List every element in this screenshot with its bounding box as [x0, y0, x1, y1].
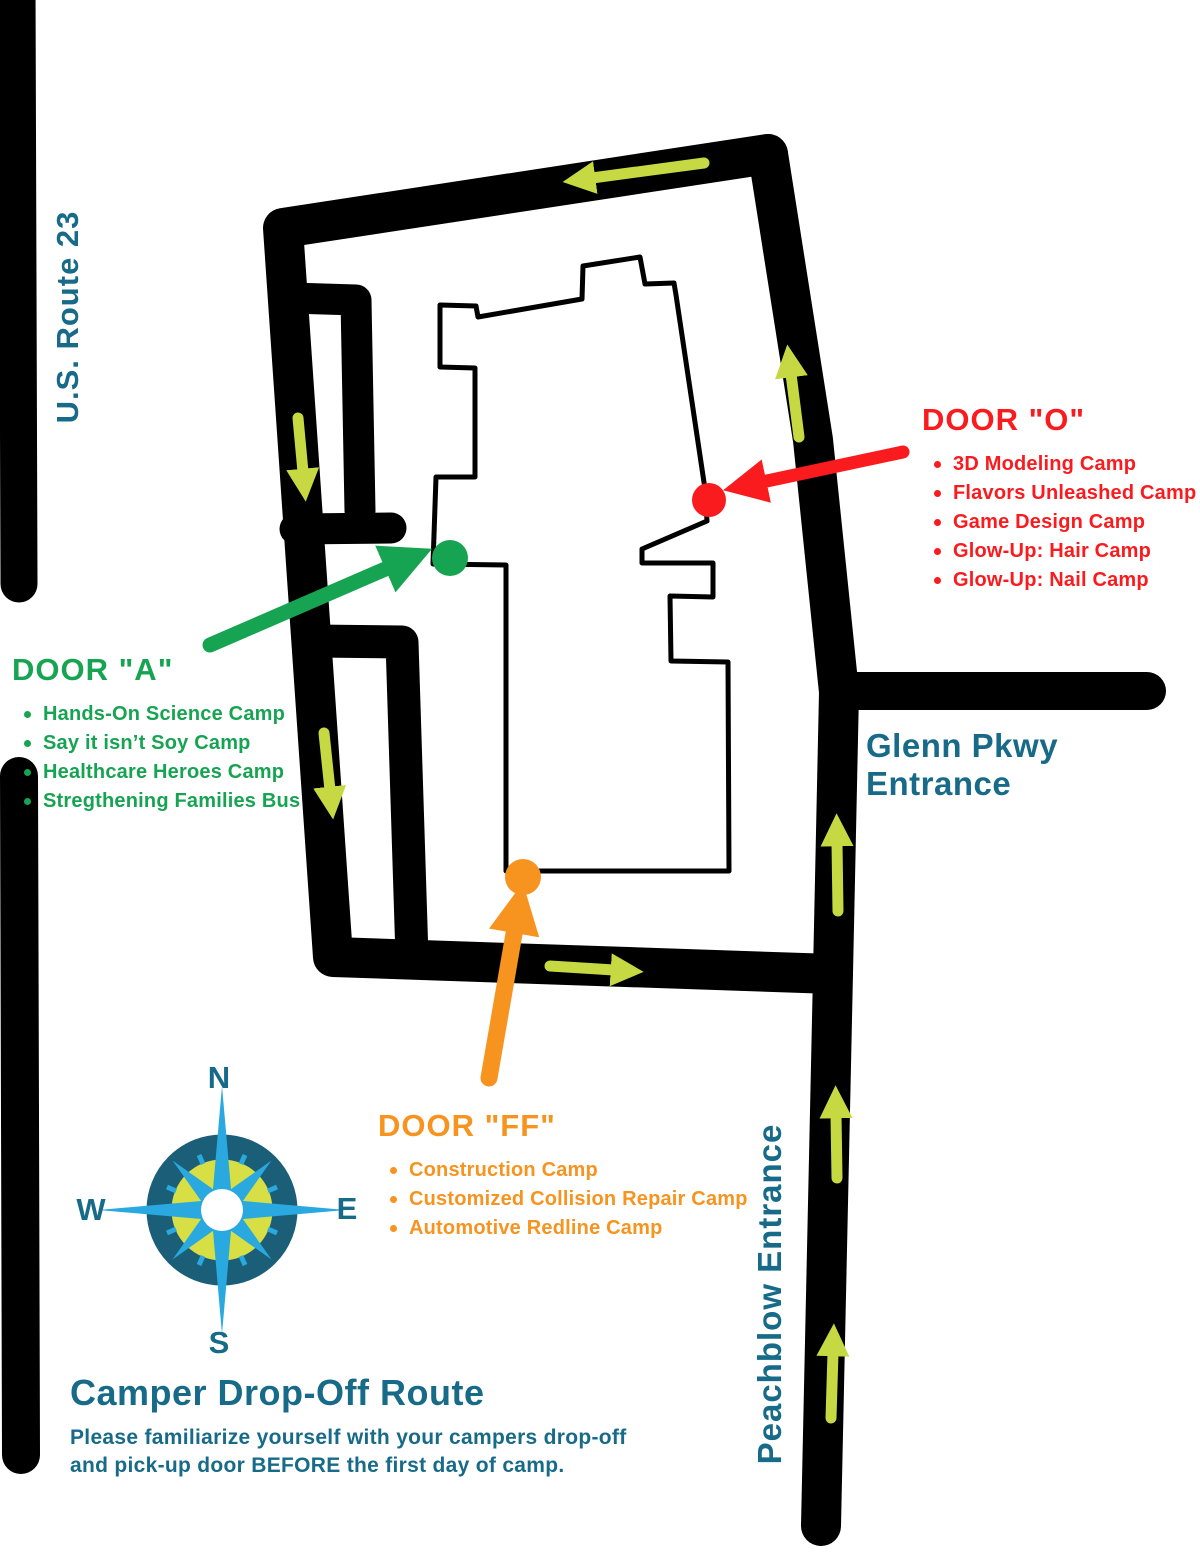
compass-center	[201, 1189, 243, 1231]
camper-dropoff-route-map: U.S. Route 23 Glenn Pkwy Entrance Peachb…	[0, 0, 1200, 1553]
camp-label: Automotive Redline Camp	[409, 1217, 663, 1240]
camp-label: Construction Camp	[409, 1159, 598, 1182]
compass-east-label: E	[325, 1189, 369, 1229]
door-o-dot	[692, 483, 726, 517]
door-ff-title: DOOR "FF"	[378, 1108, 748, 1142]
camp-label: Hands-On Science Camp	[43, 703, 285, 726]
camp-label: Healthcare Heroes Camp	[43, 761, 284, 784]
compass-north-label: N	[197, 1058, 241, 1098]
bullet-icon	[390, 1225, 397, 1232]
camp-label: Say it isn’t Soy Camp	[43, 732, 251, 755]
peachblow-entrance-label: Peachblow Entrance	[751, 1114, 787, 1474]
us-route-23-road-lower	[19, 776, 21, 1455]
bullet-icon	[934, 461, 941, 468]
list-item: Glow-Up: Nail Camp	[920, 566, 1196, 595]
camp-label: Customized Collision Repair Camp	[409, 1188, 748, 1211]
list-item: Hands-On Science Camp	[10, 700, 300, 729]
door-o-camp-list: 3D Modeling Camp Flavors Unleashed Camp …	[920, 450, 1196, 595]
door-ff-block: DOOR "FF" Construction Camp Customized C…	[376, 1108, 748, 1243]
footer-instruction-line1: Please familiarize yourself with your ca…	[70, 1426, 627, 1450]
list-item: Flavors Unleashed Camp	[920, 479, 1196, 508]
camp-label: Glow-Up: Hair Camp	[953, 540, 1151, 563]
door-a-camp-list: Hands-On Science Camp Say it isn’t Soy C…	[10, 700, 300, 816]
route-arrow-left-down-2	[324, 733, 330, 790]
list-item: Game Design Camp	[920, 508, 1196, 537]
camp-label: Glow-Up: Nail Camp	[953, 569, 1149, 592]
route-arrow-left-down-1	[298, 418, 303, 472]
bullet-icon	[934, 490, 941, 497]
glenn-pkwy-line1: Glenn Pkwy	[866, 727, 1058, 765]
list-item: Stregthening Families Bus	[10, 787, 300, 816]
door-ff-camp-list: Construction Camp Customized Collision R…	[376, 1156, 748, 1243]
compass-south-label: S	[197, 1323, 241, 1363]
door-o-block: DOOR "O" 3D Modeling Camp Flavors Unleas…	[920, 402, 1196, 595]
route-arrow-bottom-east	[550, 966, 614, 970]
door-a-dot	[432, 540, 468, 576]
door-o-title: DOOR "O"	[922, 402, 1196, 436]
page-title: Camper Drop-Off Route	[70, 1372, 485, 1414]
bullet-icon	[24, 769, 31, 776]
list-item: Healthcare Heroes Camp	[10, 758, 300, 787]
us-route-23-road-upper	[17, 0, 19, 584]
glenn-pkwy-entrance-label: Glenn Pkwy Entrance	[866, 727, 1058, 803]
list-item: Say it isn’t Soy Camp	[10, 729, 300, 758]
upper-parking-stub-road-bottom	[295, 528, 391, 529]
route-arrow-peachblow-up-2	[831, 1353, 833, 1418]
camp-label: 3D Modeling Camp	[953, 453, 1136, 476]
list-item: 3D Modeling Camp	[920, 450, 1196, 479]
us-route-23-label: U.S. Route 23	[50, 187, 86, 447]
footer-instruction-line2: and pick-up door BEFORE the first day of…	[70, 1454, 565, 1478]
list-item: Construction Camp	[376, 1156, 748, 1185]
bullet-icon	[934, 519, 941, 526]
door-a-block: DOOR "A" Hands-On Science Camp Say it is…	[10, 652, 300, 816]
list-item: Glow-Up: Hair Camp	[920, 537, 1196, 566]
route-arrow-peachblow-up-1	[836, 1115, 837, 1178]
building-outline	[433, 257, 729, 871]
compass-west-label: W	[69, 1190, 113, 1230]
compass-rose	[98, 1086, 346, 1334]
bullet-icon	[24, 798, 31, 805]
door-a-title: DOOR "A"	[12, 652, 300, 686]
camp-label: Flavors Unleashed Camp	[953, 482, 1196, 505]
bullet-icon	[934, 548, 941, 555]
bullet-icon	[24, 740, 31, 747]
route-arrow-mid-up	[837, 843, 838, 911]
bullet-icon	[390, 1196, 397, 1203]
bullet-icon	[390, 1167, 397, 1174]
glenn-pkwy-line2: Entrance	[866, 765, 1058, 803]
camp-label: Game Design Camp	[953, 511, 1145, 534]
bullet-icon	[24, 711, 31, 718]
door-ff-dot	[505, 859, 541, 895]
bullet-icon	[934, 577, 941, 584]
list-item: Automotive Redline Camp	[376, 1214, 748, 1243]
list-item: Customized Collision Repair Camp	[376, 1185, 748, 1214]
camp-label: Stregthening Families Bus	[43, 790, 300, 813]
